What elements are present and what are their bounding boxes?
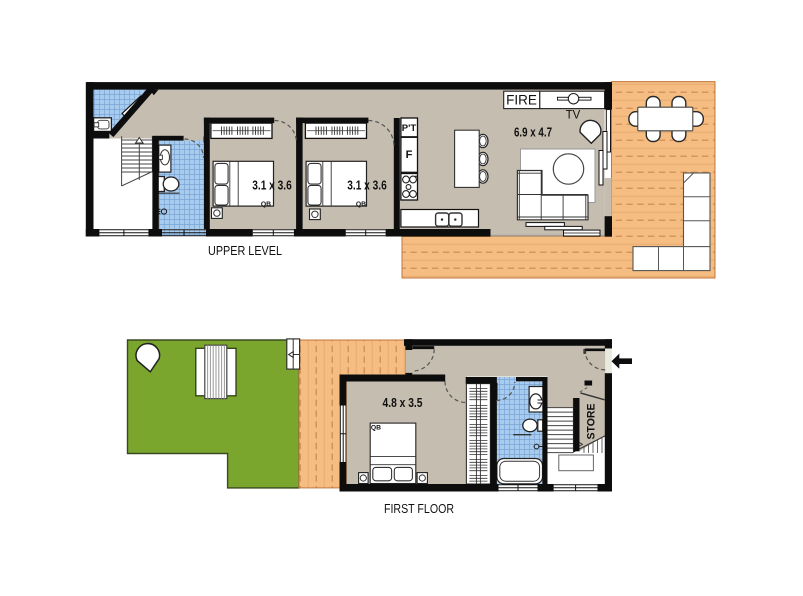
svg-text:P'T: P'T (402, 123, 417, 134)
svg-text:3.1 x 3.6: 3.1 x 3.6 (347, 179, 387, 193)
svg-text:TV: TV (566, 110, 581, 122)
svg-text:6.9 x 4.7: 6.9 x 4.7 (514, 126, 552, 140)
svg-text:4.8 x 3.5: 4.8 x 3.5 (383, 396, 423, 410)
svg-text:QB: QB (371, 425, 381, 432)
svg-text:3.1 x 3.6: 3.1 x 3.6 (252, 179, 292, 193)
svg-text:FIRST FLOOR: FIRST FLOOR (384, 501, 454, 516)
svg-text:QB: QB (261, 201, 271, 208)
svg-text:STORE: STORE (586, 404, 598, 440)
svg-text:UPPER LEVEL: UPPER LEVEL (208, 243, 282, 258)
svg-text:FIRE: FIRE (506, 93, 537, 108)
svg-text:QB: QB (356, 201, 366, 208)
svg-text:F: F (406, 149, 413, 161)
